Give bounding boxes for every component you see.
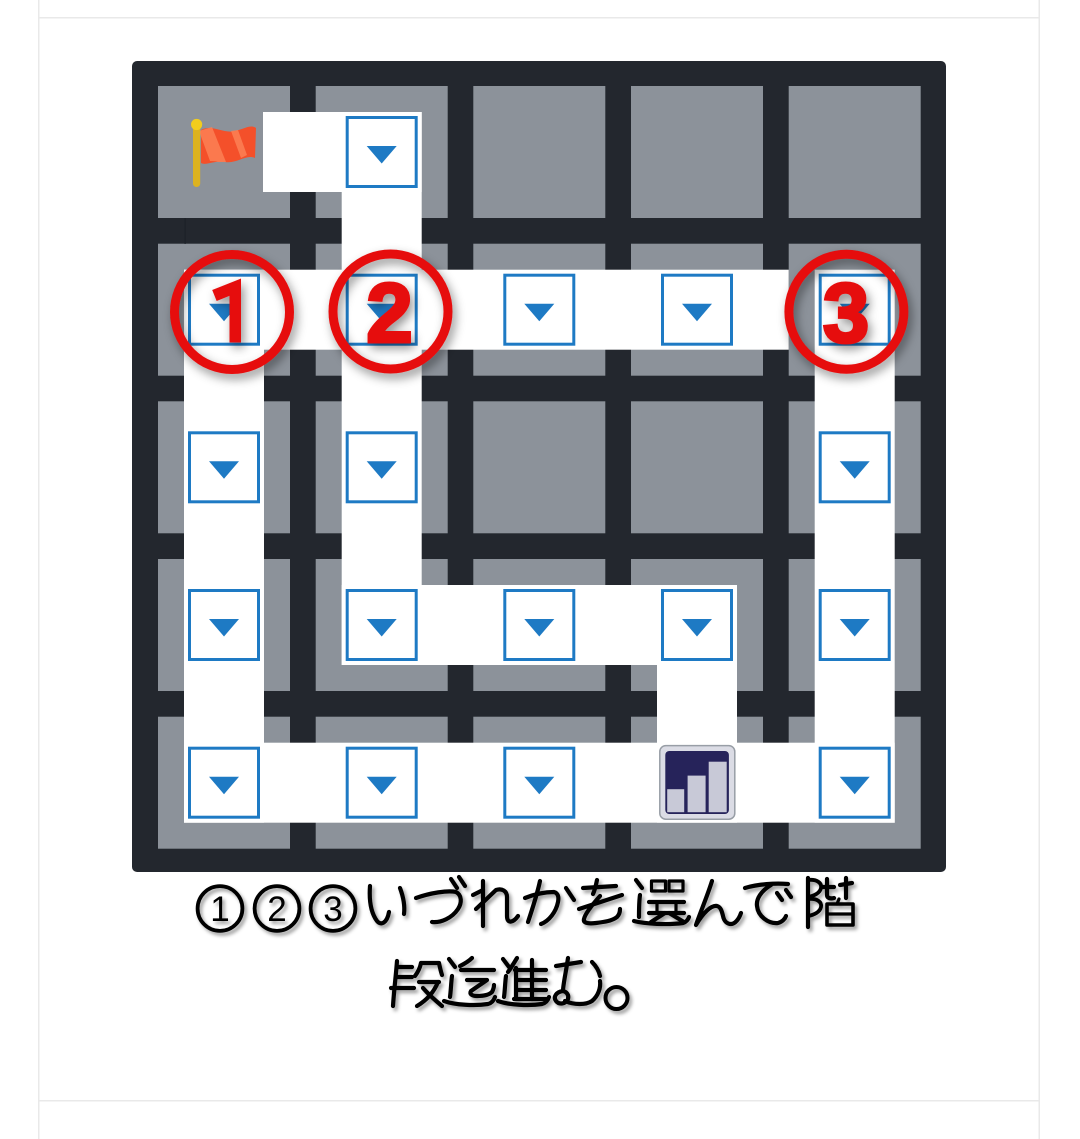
svg-text:2: 2 <box>267 890 286 929</box>
svg-text:3: 3 <box>823 266 870 360</box>
svg-text:1: 1 <box>210 890 229 929</box>
svg-text:3: 3 <box>323 890 342 929</box>
svg-text:2: 2 <box>366 266 413 360</box>
